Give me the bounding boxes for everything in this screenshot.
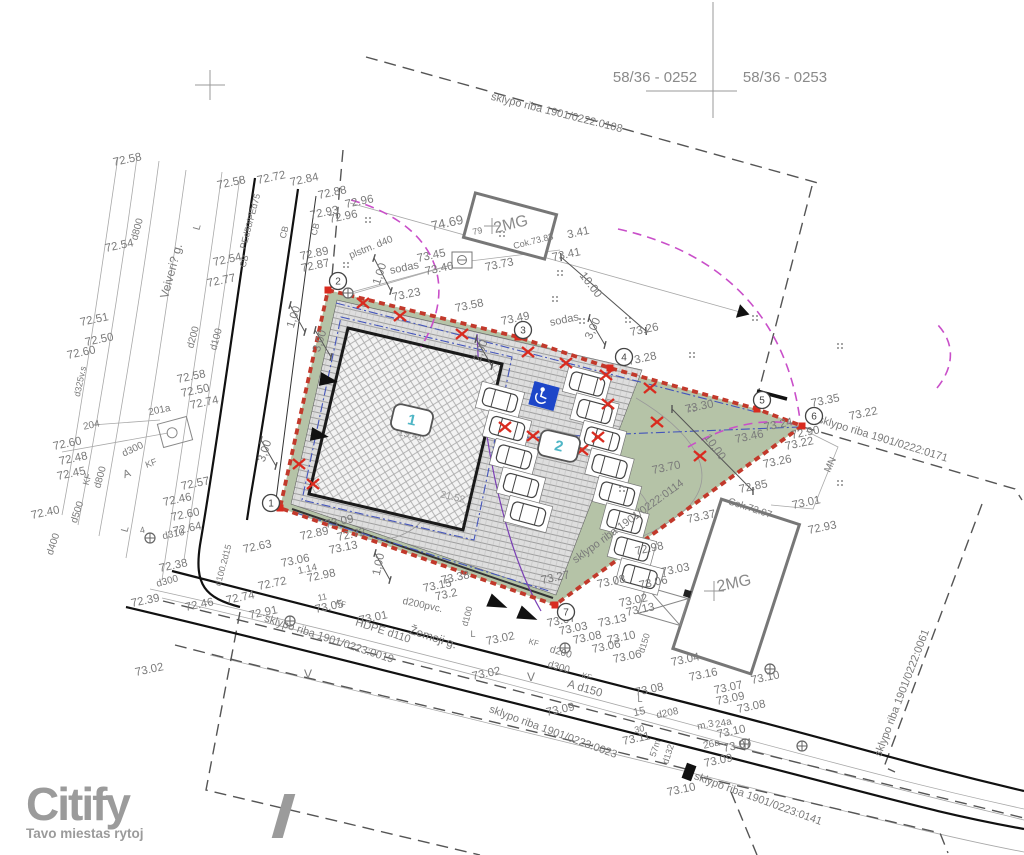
plan-label: d100 xyxy=(460,605,475,627)
plan-label: 72.72 xyxy=(257,575,288,593)
svg-text:6: 6 xyxy=(811,412,817,423)
plan-label: sklypo riba 1901/0222:0108 xyxy=(490,91,624,135)
vegetation-mark xyxy=(343,262,349,268)
plan-label: 73.01 xyxy=(791,494,822,512)
vegetation-mark xyxy=(552,296,558,302)
plan-label: V xyxy=(527,670,535,684)
plan-label: sklypo riba 1901/0222:0061 xyxy=(872,628,932,758)
plan-label: 72.63 xyxy=(242,538,273,556)
plan-label: 73.22 xyxy=(784,435,815,453)
plan-label: L xyxy=(120,525,132,534)
plan-label: 73.23 xyxy=(391,286,422,304)
plan-label: 73.03 xyxy=(660,561,691,579)
plan-label: 15 xyxy=(632,705,646,719)
plan-label: 72.77 xyxy=(206,272,237,290)
plan-label: 73.22 xyxy=(848,405,879,423)
plan-label: KF xyxy=(144,456,159,470)
direction-arrow xyxy=(486,594,510,615)
plan-label: d300 xyxy=(546,659,571,676)
vegetation-mark xyxy=(579,318,585,324)
plan-label: sklypo riba 1901/0222:0171 xyxy=(816,414,949,465)
plan-label: 73.09 xyxy=(703,752,734,770)
site-plan-page: { "header": {"plot_left": "58/36 - 0252"… xyxy=(0,0,1024,855)
plan-label: MN xyxy=(822,456,839,475)
plan-label: 73.09 xyxy=(545,701,576,719)
vegetation-mark xyxy=(837,343,843,349)
plan-label: 73.16 xyxy=(688,666,719,684)
plan-label: d208 xyxy=(655,706,679,721)
plan-label: 73.02 xyxy=(485,630,516,648)
boundary-point-marker: 5 xyxy=(754,392,771,409)
plan-label: 73.10 xyxy=(750,669,781,687)
plan-label: 72.51 xyxy=(79,311,110,329)
boundary-point-marker: 4 xyxy=(616,349,633,366)
plan-label: 73.26 xyxy=(762,453,793,471)
plan-label: d800 xyxy=(129,217,145,242)
plan-label: 72.72 xyxy=(256,169,287,187)
svg-text:1: 1 xyxy=(268,499,274,510)
plan-label: 72.58 xyxy=(112,151,143,169)
vegetation-mark xyxy=(752,315,758,321)
plan-label: plstm. d40 xyxy=(348,234,395,262)
svg-text:2: 2 xyxy=(335,277,341,288)
boundary-corner-point xyxy=(325,287,332,294)
plan-label: 79 xyxy=(471,225,483,237)
plan-label: d310 xyxy=(161,527,185,542)
plan-label: 73.11 xyxy=(621,730,651,748)
boundary-point-marker: 1 xyxy=(263,495,280,512)
plan-label: d132 xyxy=(660,743,676,765)
plan-label: Veiveri? g. xyxy=(157,242,185,300)
plan-label: 72.40 xyxy=(30,504,61,522)
plan-label: 74.69 xyxy=(430,212,465,233)
plan-label: KF xyxy=(528,637,540,649)
plan-label: 72.93 xyxy=(807,519,838,537)
plan-label: d300 xyxy=(121,440,146,460)
plan-label: 1,00 xyxy=(285,305,303,330)
plan-label: d300 xyxy=(155,573,180,589)
plan-label: 73.58 xyxy=(454,297,485,315)
plan-label: sklypo riba 1901/0223:0141 xyxy=(692,770,823,828)
plan-label: L xyxy=(637,694,642,704)
svg-text:3: 3 xyxy=(520,326,526,337)
plan-label: 72.60 xyxy=(66,344,97,362)
direction-arrow xyxy=(736,304,752,321)
plan-label: 72.84 xyxy=(289,171,320,189)
plan-label: d800 xyxy=(92,465,108,490)
plan-label: 72.39 xyxy=(130,592,161,610)
survey-station-box xyxy=(157,417,192,448)
citify-logo-name: Citify xyxy=(26,784,144,824)
plan-label: 73.10 xyxy=(666,781,697,799)
boundary-point-marker: 2 xyxy=(330,273,347,290)
plan-label: CB xyxy=(309,222,322,237)
direction-arrow xyxy=(516,606,540,627)
boundary-corner-point xyxy=(552,602,559,609)
plan-label: KF xyxy=(581,671,593,683)
svg-text:4: 4 xyxy=(621,353,627,364)
plan-label: 73.08 xyxy=(596,573,627,591)
plan-label: KF xyxy=(81,472,94,486)
plan-label: 73.02 xyxy=(134,661,165,679)
boundary-corner-point xyxy=(607,365,614,372)
plan-label: 3.41 xyxy=(566,225,590,241)
plan-label: PEd50/PEd75 xyxy=(238,193,262,250)
plan-label: 10.00 xyxy=(577,270,604,300)
plan-label: d325v.s xyxy=(72,365,88,398)
plan-label: Žemoji g. xyxy=(408,622,460,652)
plan-label: 1,00 xyxy=(371,552,387,576)
plan-label: 73.04 xyxy=(670,651,701,669)
plan-label: d100 xyxy=(208,327,224,352)
site-plan-canvas: 58/36 - 0252 58/36 - 0253 xyxy=(0,0,1024,855)
plan-label: L xyxy=(470,629,475,639)
manhole-symbol xyxy=(343,288,353,298)
plan-label: 72.46 xyxy=(184,596,215,614)
svg-text:7: 7 xyxy=(563,608,569,619)
manhole-boxed xyxy=(452,252,472,268)
plan-label: 72.74 xyxy=(225,589,256,607)
boundary-point-marker: 3 xyxy=(515,322,532,339)
vegetation-mark xyxy=(365,217,371,223)
survey-grid-marks xyxy=(195,2,737,118)
citify-logo-tagline: Tavo miestas rytoj xyxy=(26,826,144,841)
vegetation-mark xyxy=(837,480,843,486)
boundary-point-marker: 7 xyxy=(558,604,575,621)
plan-label: 73.40 xyxy=(424,260,455,278)
plan-label: d100.2d15 xyxy=(213,543,234,587)
plan-label: 72.57 xyxy=(180,475,211,493)
plan-label: d400 xyxy=(45,532,62,557)
svg-text:5: 5 xyxy=(759,396,765,407)
vegetation-mark xyxy=(689,352,695,358)
plan-label: CB xyxy=(278,225,291,240)
plot-number-right: 58/36 - 0253 xyxy=(743,69,827,86)
plan-label: d200 xyxy=(185,325,201,350)
citify-logo: Citify Tavo miestas rytoj xyxy=(26,784,144,841)
manhole-symbol xyxy=(797,741,807,751)
plan-label: 204 xyxy=(82,418,101,432)
boundary-point-marker: 6 xyxy=(806,408,823,425)
vegetation-mark xyxy=(625,317,631,323)
plan-label: CB xyxy=(238,254,251,269)
plan-label: 72.60 xyxy=(52,435,83,453)
plan-label: 73.13 xyxy=(597,612,628,630)
plan-label: d500 xyxy=(69,500,86,525)
plan-label: d150 xyxy=(636,632,652,654)
plot-number-left: 58/36 - 0252 xyxy=(613,69,697,86)
plan-label: V xyxy=(304,667,312,681)
plan-label: 72.58 xyxy=(216,174,247,192)
manhole-symbol xyxy=(145,533,155,543)
plan-label: 4 xyxy=(139,525,146,536)
plan-label: sodas xyxy=(549,311,581,329)
plan-label: 73.26 xyxy=(629,321,660,339)
vegetation-mark xyxy=(557,270,563,276)
plan-label: L xyxy=(192,223,204,232)
plan-label: 72.46 xyxy=(162,491,193,509)
plan-label: A xyxy=(121,467,133,481)
